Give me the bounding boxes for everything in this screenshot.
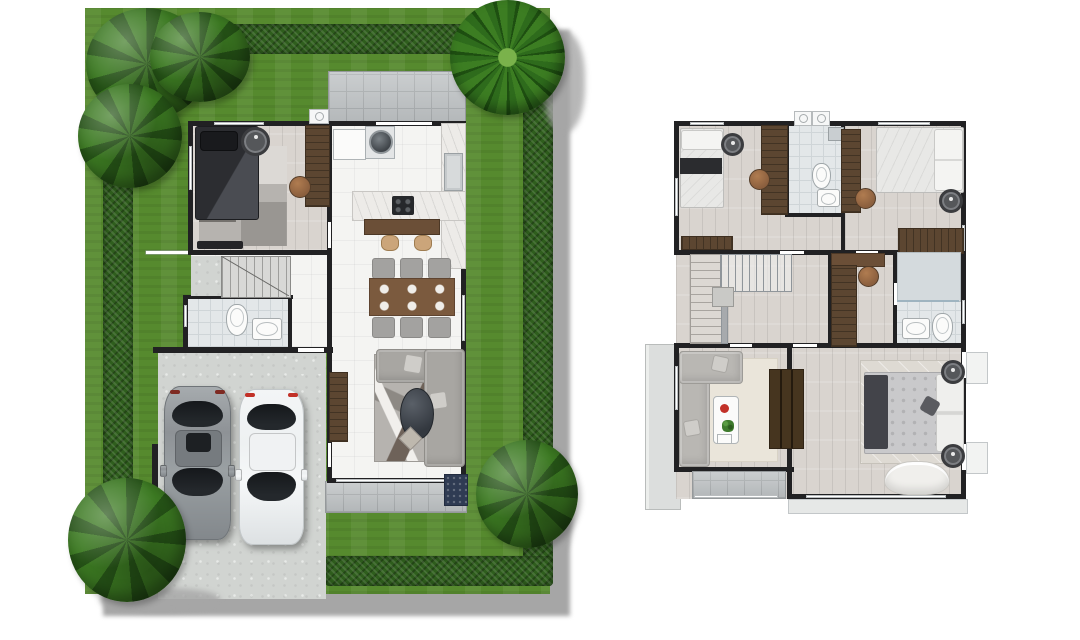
- bath3-glass-partition: [897, 300, 959, 302]
- master-door-opening: [793, 344, 817, 347]
- car-windshield: [247, 472, 296, 501]
- table-plant: [722, 420, 734, 432]
- toilet: [226, 304, 248, 336]
- bar-stool: [414, 235, 432, 251]
- master-pillows: [936, 374, 964, 452]
- round-rug: [241, 127, 270, 156]
- bed3-chair: [855, 188, 876, 209]
- newel-landing: [712, 287, 734, 307]
- bedroom-door-opening: [328, 222, 331, 248]
- bath2-basin: [817, 189, 840, 207]
- dining-chair: [400, 258, 423, 279]
- table-card: [717, 434, 732, 444]
- sliding-door-family-south: [694, 495, 778, 498]
- living-tv-console: [329, 372, 348, 442]
- car-taillight: [245, 393, 255, 397]
- bed2-chair: [749, 169, 770, 190]
- dining-chair: [372, 317, 395, 338]
- ac-unit: [309, 109, 329, 124]
- bath3-shower-area: [897, 252, 961, 302]
- tree-left: [78, 84, 182, 188]
- nook-wardrobe: [831, 265, 857, 347]
- car-roof: [175, 430, 223, 467]
- dining-table: [369, 278, 455, 316]
- window-bedroom-north: [214, 122, 264, 125]
- under-stair-storage: [191, 256, 221, 296]
- car-sunroof: [186, 433, 211, 452]
- nook-chair: [858, 266, 879, 287]
- tree-bottom-right: [476, 440, 578, 548]
- wall-bedroom-south: [188, 250, 332, 255]
- sofa-cushion: [403, 354, 424, 375]
- car-mirror: [301, 469, 308, 481]
- bed3-round-rug: [939, 189, 963, 213]
- bedside-stool: [941, 444, 965, 468]
- doormat: [444, 474, 468, 506]
- sliding-door-living-south: [336, 479, 456, 482]
- bed-pillow: [200, 131, 238, 151]
- dining-chair: [428, 317, 451, 338]
- car-windshield: [172, 468, 223, 497]
- bed3-closet: [898, 228, 964, 254]
- stove: [392, 196, 414, 215]
- hedge-bottom: [325, 556, 553, 586]
- balcony-bottom: [788, 499, 968, 514]
- family-cushion: [711, 355, 730, 374]
- bed2-throw: [680, 158, 722, 174]
- window-bed2-west: [675, 178, 678, 216]
- bed2-dresser: [681, 236, 733, 250]
- family-cushion: [683, 419, 702, 438]
- window-bath3-east: [962, 300, 965, 324]
- bar-stool: [381, 235, 399, 251]
- side-gate: [146, 251, 188, 254]
- washing-machine-drum: [369, 130, 393, 154]
- patio-door-opening: [376, 122, 432, 125]
- ac-unit: [812, 111, 830, 126]
- car-white: [239, 389, 304, 545]
- window-dining-east: [462, 295, 465, 341]
- family-door-opening: [730, 344, 752, 347]
- utility-patio: [328, 71, 466, 127]
- bedroom-tv-console: [197, 241, 243, 249]
- master-blanket: [864, 375, 888, 449]
- kitchen-sink: [444, 153, 463, 191]
- entry-porch: [288, 352, 326, 374]
- bed3-pillows: [934, 129, 963, 191]
- sliding-door-master-south: [806, 495, 946, 498]
- window-bed2-north: [690, 122, 724, 125]
- wall-bath-east: [288, 295, 292, 352]
- car-taillight: [288, 393, 298, 397]
- car-mirror: [160, 465, 167, 477]
- red-bowl: [720, 404, 729, 413]
- dining-chair: [372, 258, 395, 279]
- window-bedroom-west: [189, 146, 192, 190]
- car-mirror: [235, 469, 242, 481]
- fridge: [333, 129, 366, 160]
- bed2-round-rug: [721, 133, 744, 156]
- car-rear-glass: [247, 404, 296, 430]
- juliet-balcony: [966, 352, 988, 384]
- palm-top-right: [450, 0, 565, 115]
- bedroom-chair: [289, 176, 311, 198]
- entry-door-opening: [298, 348, 324, 352]
- car-rear-glass: [172, 401, 223, 427]
- car-roof: [249, 433, 295, 470]
- family-tv-console: [769, 369, 804, 449]
- floor-plan-canvas: [0, 0, 1080, 640]
- car-taillight: [170, 390, 180, 394]
- window-bath-west: [184, 305, 187, 327]
- wall2-bath2-south: [785, 213, 845, 217]
- bed2-pillows: [681, 130, 723, 150]
- bedside-stool: [941, 360, 965, 384]
- breakfast-bar: [364, 219, 440, 235]
- ac-unit: [794, 111, 812, 126]
- bath2-toilet: [812, 163, 831, 189]
- dining-chair: [400, 317, 423, 338]
- washbasin: [252, 318, 282, 340]
- wall2-east-mid: [961, 250, 966, 347]
- tree-top-left-lobe: [150, 12, 250, 102]
- window-family-west: [675, 366, 678, 410]
- living-door-opening: [328, 443, 331, 467]
- bath3-toilet: [932, 313, 953, 342]
- car-mirror: [228, 465, 235, 477]
- stair-break-line: [221, 256, 289, 296]
- dining-chair: [428, 258, 451, 279]
- car-taillight: [215, 390, 225, 394]
- bath3-basin: [902, 318, 930, 339]
- bedroom-wardrobe: [305, 125, 330, 207]
- curved-lounge-sofa: [884, 461, 950, 495]
- window-bed3-north: [878, 122, 930, 125]
- juliet-balcony: [966, 442, 988, 474]
- tree-bottom-left: [68, 478, 186, 602]
